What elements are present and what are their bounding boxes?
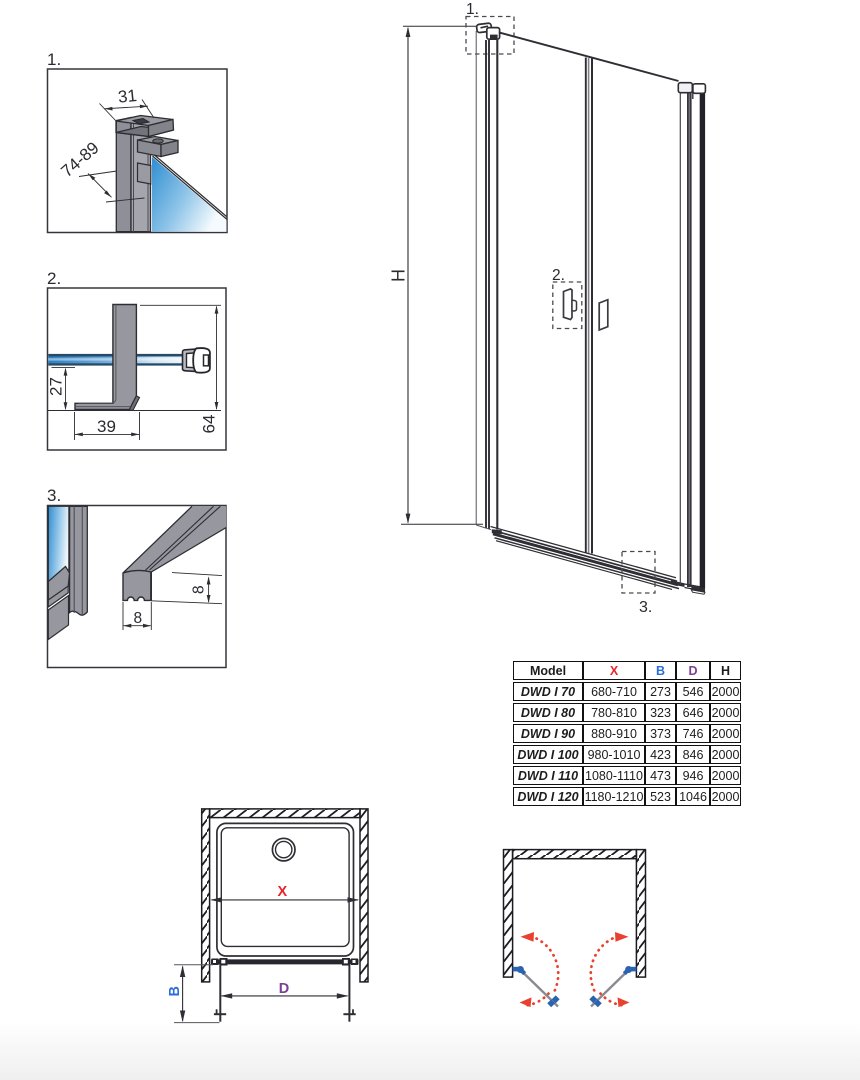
svg-text:64: 64 — [200, 415, 219, 434]
svg-text:8: 8 — [191, 585, 208, 594]
svg-text:2.: 2. — [47, 269, 61, 288]
svg-text:39: 39 — [97, 417, 116, 436]
svg-text:8: 8 — [134, 610, 143, 627]
svg-text:1.: 1. — [47, 50, 61, 69]
svg-text:3.: 3. — [47, 486, 61, 505]
svg-text:H: H — [389, 269, 409, 282]
svg-text:X: X — [278, 884, 288, 900]
svg-text:27: 27 — [47, 377, 66, 396]
svg-text:B: B — [167, 986, 183, 996]
svg-text:D: D — [279, 981, 289, 997]
svg-text:3.: 3. — [639, 599, 652, 616]
svg-text:74-89: 74-89 — [57, 138, 102, 181]
svg-text:31: 31 — [117, 86, 138, 107]
svg-text:1.: 1. — [466, 1, 479, 18]
